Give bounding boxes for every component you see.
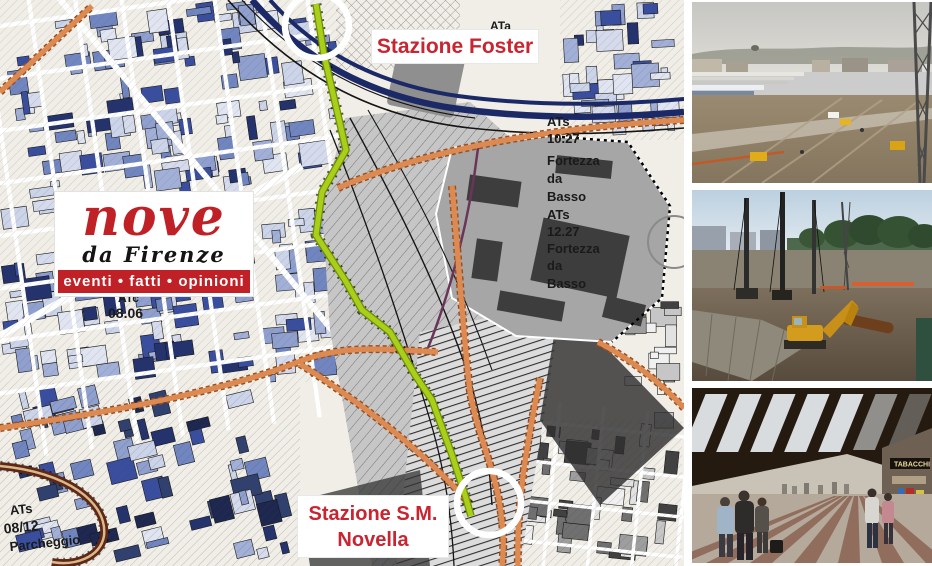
- annotation-line: Fortezza: [547, 241, 601, 256]
- construction-drill-rigs-photo: [692, 190, 932, 381]
- tabacchi-sign-text: TABACCHI: [894, 462, 930, 469]
- trains-and-platforms: [692, 72, 804, 95]
- annotation-parcheggio: ATs: [9, 501, 33, 518]
- nove-da-firenze-logo: nove da Firenze eventi • fatti • opinion…: [55, 192, 253, 296]
- annotation-line: ATs: [547, 114, 570, 129]
- green-wall: [916, 318, 932, 381]
- annotation-line: Basso: [547, 189, 586, 204]
- annotation-line: ATs: [547, 207, 570, 222]
- foster-station-label-text: Stazione Foster: [377, 35, 533, 59]
- smn-station-label-line2: Novella: [337, 527, 408, 553]
- logo-tagline: eventi • fatti • opinioni: [58, 270, 250, 293]
- annotation-line: da: [547, 171, 563, 186]
- annotation-line: Basso: [547, 276, 586, 291]
- logo-title: nove: [55, 194, 253, 242]
- smn-station-label-line1: Stazione S.M.: [309, 501, 438, 527]
- station-concourse-photo: TABACCHI: [692, 388, 932, 563]
- smn-station-label: Stazione S.M. Novella: [298, 496, 448, 557]
- annotation-line: 12.27: [547, 224, 580, 239]
- luggage: [770, 540, 783, 553]
- annotation-line: da: [547, 258, 563, 273]
- annotation-line: 10.27: [547, 131, 580, 146]
- duomo-dome: [751, 45, 759, 51]
- logo-subtitle: da Firenze: [55, 242, 253, 267]
- annotation-atc-num: 08.06: [108, 305, 143, 321]
- page: ATa ATs 10.27 Fortezza da Basso ATs 12.2…: [0, 0, 932, 566]
- annotation-line: Fortezza: [547, 153, 601, 168]
- foster-station-label: Stazione Foster: [372, 30, 538, 63]
- construction-site-aerial-photo: [692, 2, 932, 183]
